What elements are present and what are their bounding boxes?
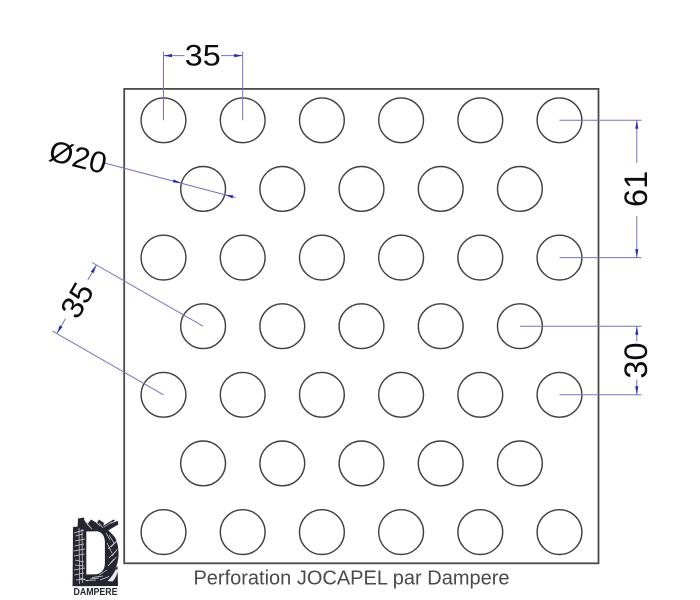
svg-text:Perforation JOCAPEL par Damper: Perforation JOCAPEL par Dampere (193, 568, 509, 590)
svg-text:35: 35 (185, 39, 221, 72)
svg-text:30: 30 (618, 342, 654, 378)
svg-text:DAMPERE: DAMPERE (74, 587, 118, 598)
svg-text:61: 61 (618, 171, 654, 207)
